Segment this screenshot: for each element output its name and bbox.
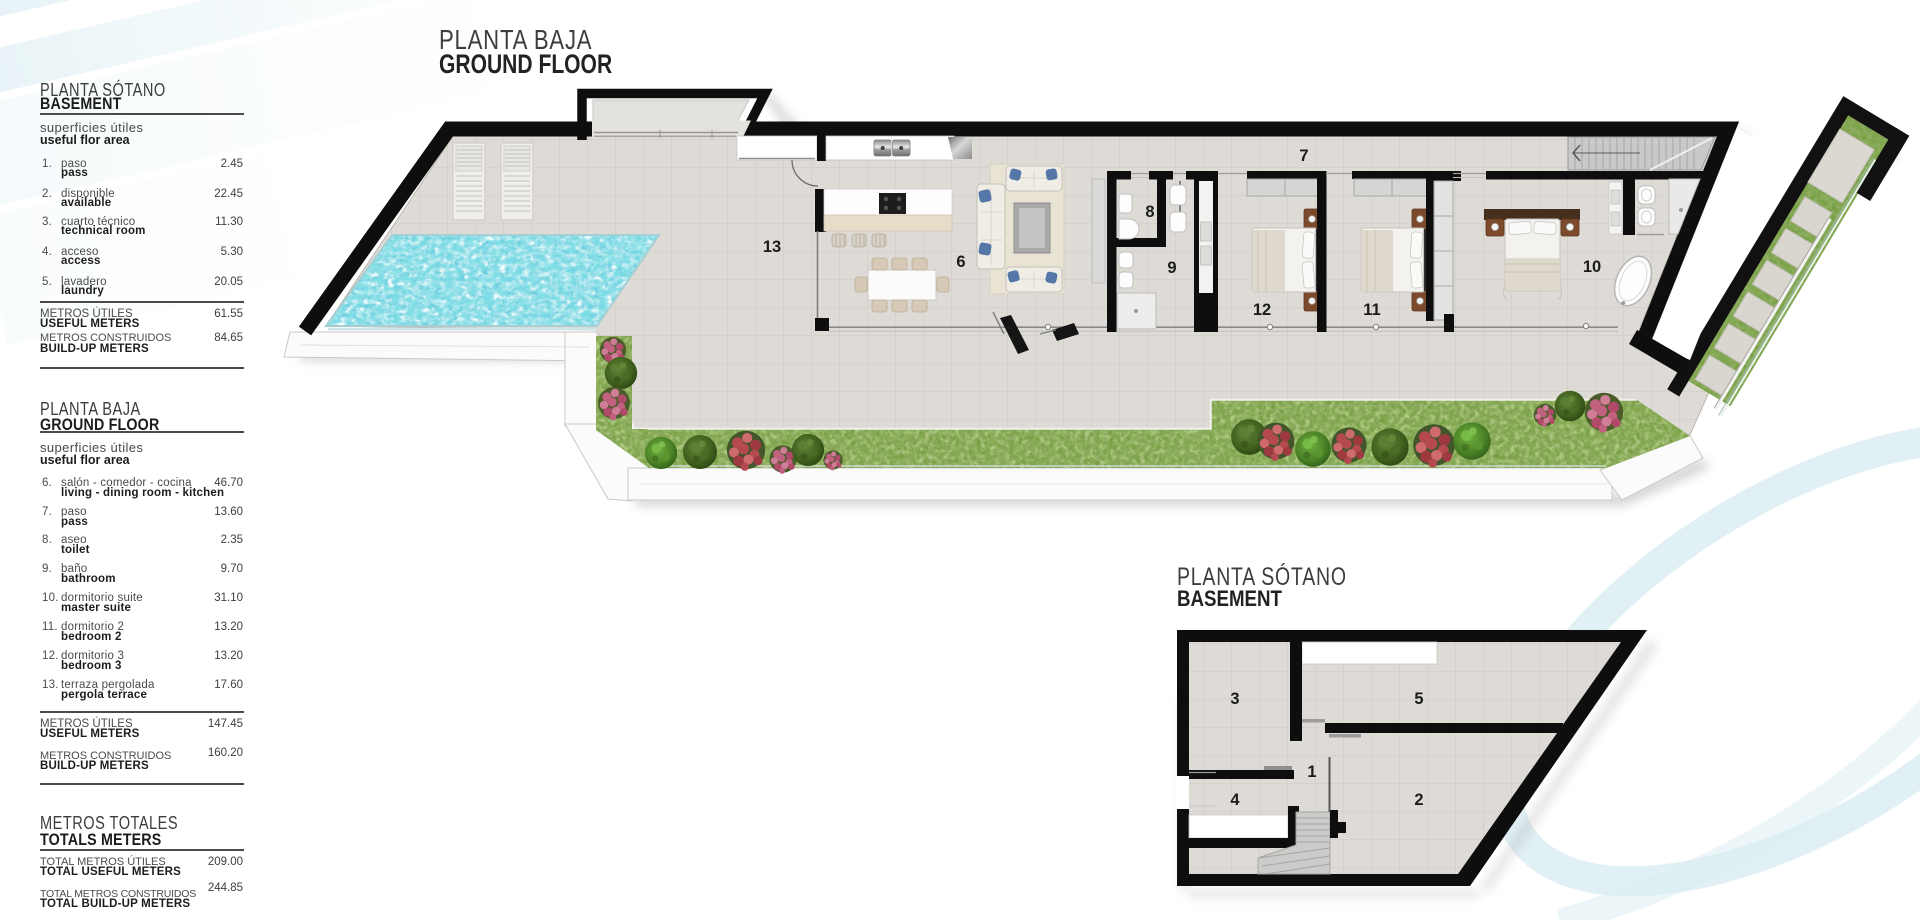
svg-text:11: 11 [1363, 301, 1380, 319]
svg-text:4: 4 [1230, 791, 1240, 809]
svg-text:2: 2 [1414, 791, 1423, 809]
svg-text:3: 3 [1230, 690, 1239, 708]
svg-text:7: 7 [1299, 147, 1308, 165]
svg-text:8: 8 [1145, 203, 1154, 221]
svg-text:1: 1 [1307, 763, 1316, 781]
svg-text:5: 5 [1414, 690, 1423, 708]
svg-text:13: 13 [763, 238, 781, 256]
svg-text:9: 9 [1167, 259, 1176, 277]
svg-text:6: 6 [956, 253, 965, 271]
svg-text:12: 12 [1253, 301, 1271, 319]
svg-text:10: 10 [1583, 258, 1601, 276]
